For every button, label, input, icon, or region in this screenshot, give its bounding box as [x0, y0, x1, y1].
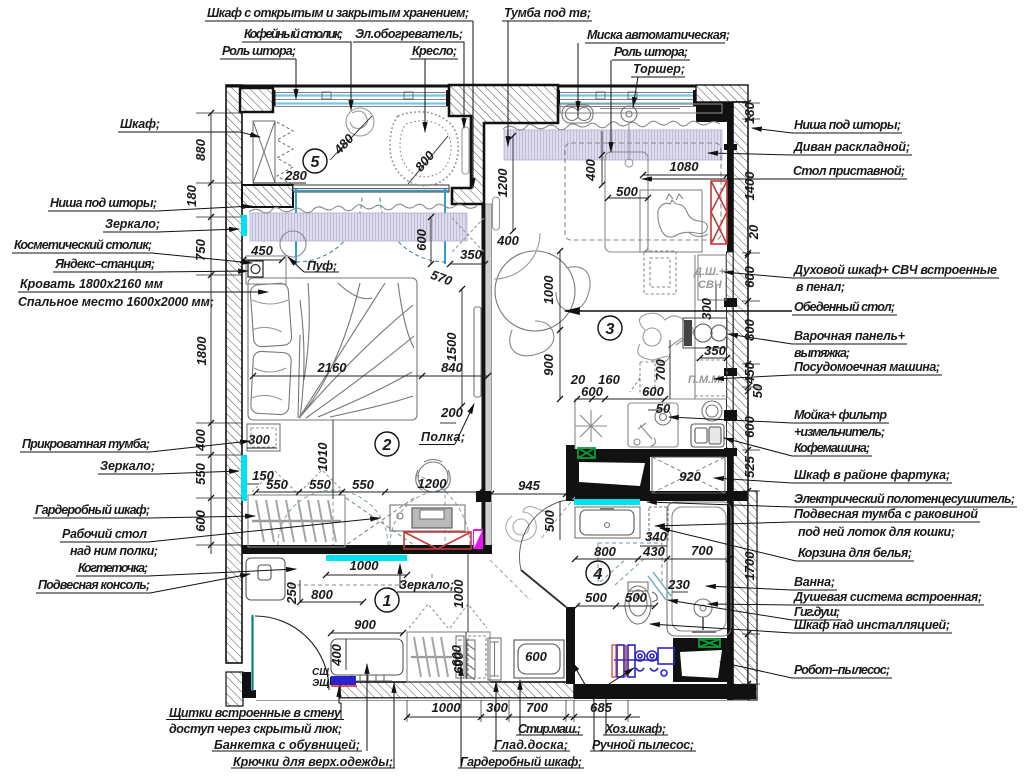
svg-text:Ручной пылесос;: Ручной пылесос; — [592, 738, 694, 752]
svg-text:300: 300 — [248, 432, 270, 447]
svg-text:500: 500 — [542, 509, 557, 531]
svg-text:Яндекс–станция;: Яндекс–станция; — [54, 257, 155, 271]
svg-text:над ним полки;: над ним полки; — [70, 544, 158, 558]
svg-text:700: 700 — [653, 358, 668, 380]
svg-text:450: 450 — [250, 243, 273, 258]
svg-text:900: 900 — [541, 353, 556, 375]
svg-text:Роль штора;: Роль штора; — [614, 45, 688, 59]
svg-text:400: 400 — [583, 158, 598, 181]
svg-text:1080: 1080 — [670, 159, 700, 174]
svg-text:800: 800 — [311, 587, 333, 602]
svg-text:Эл.обогреватель;: Эл.обогреватель; — [355, 27, 463, 41]
svg-text:Роль штора;: Роль штора; — [222, 44, 296, 58]
svg-text:880: 880 — [193, 138, 208, 160]
svg-text:П.М.М.: П.М.М. — [688, 374, 723, 386]
svg-text:в пенал;: в пенал; — [796, 280, 845, 294]
svg-text:1700: 1700 — [742, 551, 757, 581]
svg-text:2160: 2160 — [317, 360, 348, 375]
svg-text:250: 250 — [284, 581, 299, 604]
svg-text:550: 550 — [352, 477, 374, 492]
svg-text:5: 5 — [311, 154, 321, 171]
svg-text:600: 600 — [193, 509, 208, 531]
svg-text:Торшер;: Торшер; — [633, 62, 685, 76]
svg-text:Корзина для белья;: Корзина для белья; — [798, 546, 912, 560]
svg-text:500: 500 — [625, 590, 647, 605]
svg-text:4: 4 — [593, 566, 603, 583]
svg-text:под ней лоток для кошки;: под ней лоток для кошки; — [798, 525, 955, 539]
svg-text:400: 400 — [193, 428, 208, 451]
svg-text:Кровать 1800х2160 мм: Кровать 1800х2160 мм — [20, 277, 163, 291]
svg-text:50: 50 — [750, 383, 765, 398]
svg-text:Д.Ш.+: Д.Ш.+ — [693, 266, 726, 278]
svg-text:600: 600 — [525, 649, 547, 664]
svg-text:Крючки для верх.одежды;: Крючки для верх.одежды; — [233, 755, 393, 769]
svg-text:Тумба под тв;: Тумба под тв; — [504, 6, 591, 20]
svg-text:180: 180 — [184, 184, 199, 206]
svg-text:доступ через скрытый люк;: доступ через скрытый люк; — [169, 722, 342, 736]
svg-text:Кресло;: Кресло; — [412, 44, 457, 58]
svg-text:Мойка+ фильтр: Мойка+ фильтр — [794, 408, 887, 422]
svg-text:Шкаф;: Шкаф; — [120, 117, 160, 131]
svg-text:СВЧ: СВЧ — [698, 279, 722, 291]
svg-text:2: 2 — [382, 437, 392, 454]
svg-text:550: 550 — [309, 477, 331, 492]
svg-text:Ниша под шторы;: Ниша под шторы; — [794, 118, 901, 132]
svg-text:300: 300 — [486, 700, 508, 715]
svg-text:1: 1 — [383, 593, 392, 610]
svg-text:Посудомоечная машина;: Посудомоечная машина; — [794, 360, 940, 374]
svg-text:Стол приставной;: Стол приставной; — [793, 164, 905, 178]
svg-text:430: 430 — [642, 544, 665, 559]
svg-text:1200: 1200 — [495, 168, 510, 198]
svg-text:вытяжка;: вытяжка; — [794, 346, 850, 360]
svg-text:Подвесная консоль;: Подвесная консоль; — [38, 578, 150, 592]
svg-text:Обеденный стол;: Обеденный стол; — [794, 300, 895, 314]
svg-text:Духовой шкаф+ СВЧ встроенные: Духовой шкаф+ СВЧ встроенные — [793, 263, 997, 277]
svg-text:550: 550 — [193, 462, 208, 484]
svg-text:Ниша под шторы;: Ниша под шторы; — [50, 196, 157, 210]
svg-text:600: 600 — [451, 651, 466, 673]
svg-text:Кофемашина;: Кофемашина; — [794, 441, 870, 455]
svg-text:Диван раскладной;: Диван раскладной; — [793, 140, 910, 154]
svg-text:Пуф;: Пуф; — [307, 259, 337, 273]
svg-text:СЩ: СЩ — [312, 667, 329, 678]
svg-text:+измельчитель;: +измельчитель; — [794, 425, 885, 439]
svg-text:180: 180 — [742, 101, 757, 123]
svg-text:50: 50 — [656, 401, 671, 416]
svg-text:20: 20 — [746, 224, 761, 240]
svg-text:1400: 1400 — [742, 171, 757, 201]
svg-text:600: 600 — [581, 384, 603, 399]
svg-text:550: 550 — [266, 477, 288, 492]
svg-text:Шкаф в районе фартука;: Шкаф в районе фартука; — [794, 468, 950, 482]
svg-text:945: 945 — [518, 478, 540, 493]
svg-text:Зеркало;: Зеркало; — [105, 217, 160, 231]
svg-text:1500: 1500 — [444, 332, 459, 362]
svg-text:Электрический полотенцесушител: Электрический полотенцесушитель; — [794, 492, 1015, 506]
svg-text:Прикроватная тумба;: Прикроватная тумба; — [22, 437, 150, 451]
svg-text:1010: 1010 — [315, 442, 330, 472]
svg-text:1200: 1200 — [418, 476, 448, 491]
svg-text:920: 920 — [679, 469, 701, 484]
svg-text:Зеркало;: Зеркало; — [399, 578, 454, 592]
svg-text:Варочная панель+: Варочная панель+ — [794, 329, 906, 343]
svg-text:600: 600 — [414, 228, 429, 250]
svg-text:Миска автоматическая;: Миска автоматическая; — [587, 28, 730, 42]
svg-text:600: 600 — [742, 265, 757, 287]
svg-text:1800: 1800 — [194, 336, 209, 366]
svg-text:Подвесная тумба с раковиной: Подвесная тумба с раковиной — [794, 507, 978, 521]
svg-text:Робот–пылесос;: Робот–пылесос; — [794, 663, 890, 677]
svg-text:Глад.доска;: Глад.доска; — [494, 738, 568, 752]
svg-text:600: 600 — [742, 415, 757, 437]
svg-text:Косметический столик;: Косметический столик; — [14, 238, 152, 252]
svg-text:700: 700 — [526, 700, 548, 715]
svg-text:Гиг.душ;: Гиг.душ; — [794, 605, 840, 619]
svg-text:200: 200 — [440, 405, 463, 420]
svg-text:350: 350 — [704, 343, 726, 358]
svg-text:Зеркало;: Зеркало; — [100, 459, 155, 473]
svg-text:Банкетка с обувницей;: Банкетка с обувницей; — [214, 738, 360, 752]
svg-text:Стир.маш.;: Стир.маш.; — [518, 722, 581, 736]
svg-text:Когтеточка;: Когтеточка; — [78, 561, 148, 575]
svg-text:Душевая система встроенная;: Душевая система встроенная; — [793, 590, 982, 604]
svg-text:1000: 1000 — [541, 275, 556, 305]
svg-text:Кофейный столик;: Кофейный столик; — [244, 27, 343, 41]
svg-text:400: 400 — [496, 233, 519, 248]
svg-text:280: 280 — [284, 168, 307, 183]
svg-text:3: 3 — [606, 321, 615, 338]
svg-text:600: 600 — [642, 384, 664, 399]
svg-text:ЭЩ: ЭЩ — [312, 678, 329, 689]
svg-text:1000: 1000 — [432, 700, 462, 715]
svg-text:500: 500 — [616, 184, 638, 199]
svg-text:Рабочий стол: Рабочий стол — [62, 527, 147, 541]
svg-text:Гардеробный шкаф;: Гардеробный шкаф; — [460, 755, 582, 769]
svg-text:230: 230 — [667, 577, 690, 592]
svg-text:400: 400 — [329, 643, 344, 666]
svg-text:500: 500 — [585, 590, 607, 605]
svg-text:800: 800 — [594, 544, 616, 559]
svg-text:300: 300 — [699, 297, 714, 319]
svg-text:525: 525 — [742, 455, 757, 477]
svg-text:Щитки встроенные в стену: Щитки встроенные в стену — [169, 706, 342, 720]
svg-text:Гардеробный шкаф;: Гардеробный шкаф; — [35, 503, 150, 517]
svg-text:Шкаф с открытым и закрытым хра: Шкаф с открытым и закрытым хранением; — [207, 6, 469, 20]
svg-text:Хоз.шкаф;: Хоз.шкаф; — [604, 722, 666, 736]
svg-text:350: 350 — [460, 247, 482, 262]
svg-text:700: 700 — [691, 543, 713, 558]
svg-text:900: 900 — [354, 617, 376, 632]
svg-text:Спальное место 1600х2000 мм;: Спальное место 1600х2000 мм; — [18, 295, 214, 309]
svg-text:Ванна;: Ванна; — [794, 575, 835, 589]
svg-text:340: 340 — [645, 529, 667, 544]
svg-text:1000: 1000 — [350, 558, 380, 573]
svg-text:450: 450 — [742, 361, 757, 384]
